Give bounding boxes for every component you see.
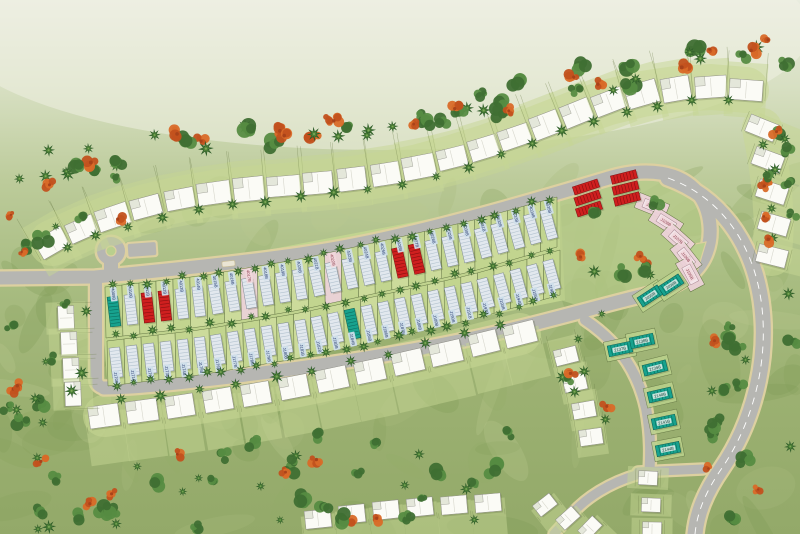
villa	[694, 75, 728, 101]
villa	[440, 495, 469, 517]
villa-plot	[627, 466, 669, 490]
villa	[56, 306, 75, 332]
villa	[125, 398, 161, 426]
villa	[59, 332, 78, 358]
median-island	[222, 260, 236, 267]
villa-plot	[631, 518, 672, 534]
villa-plot	[630, 493, 672, 516]
villa	[196, 180, 234, 208]
villa	[240, 380, 273, 408]
villa-plot	[121, 397, 168, 461]
flame-tree	[447, 101, 463, 112]
siteplan-canvas: 4009B4010B4011B4012B4013B4014B4015B4016B…	[0, 0, 800, 534]
villa	[164, 393, 197, 421]
villa	[266, 174, 303, 199]
villa	[578, 427, 605, 448]
villa	[642, 522, 663, 534]
villa-plot	[52, 377, 99, 411]
masterplan-map: 4009B4010B4011B4012B4013B4014B4015B4016B…	[0, 0, 800, 534]
villa-plot	[470, 493, 508, 534]
villa	[638, 471, 659, 488]
villa-plot	[436, 495, 474, 534]
villa	[474, 493, 503, 515]
villa	[641, 498, 662, 514]
